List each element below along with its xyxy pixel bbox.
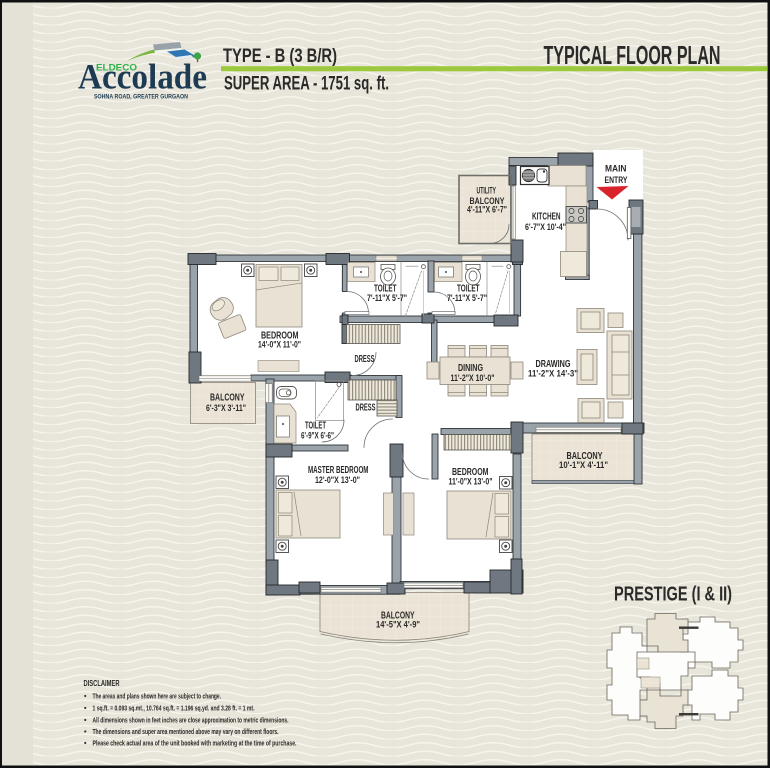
svg-text:6'-3"X 3'-11": 6'-3"X 3'-11" (206, 403, 246, 413)
svg-text:14'-0"X 11'-0": 14'-0"X 11'-0" (258, 340, 301, 351)
svg-text:11'-0"X 13'-0": 11'-0"X 13'-0" (449, 476, 493, 486)
svg-text:Please check actual area of th: Please check actual area of the unit boo… (93, 739, 297, 748)
svg-text:11'-2"X 10'-0": 11'-2"X 10'-0" (451, 373, 495, 383)
svg-text:6'-9"X 6'-6": 6'-9"X 6'-6" (301, 430, 334, 440)
svg-text:MAIN: MAIN (605, 164, 627, 175)
svg-text:TYPE - B (3 B/R): TYPE - B (3 B/R) (223, 45, 337, 67)
svg-text:14'-5"X 4'-9": 14'-5"X 4'-9" (376, 620, 420, 630)
svg-text:ENTRY: ENTRY (605, 175, 628, 186)
svg-text:The areas and plans shown here: The areas and plans shown here are subje… (93, 692, 222, 701)
svg-text:7'-11"X 5'-7": 7'-11"X 5'-7" (447, 293, 487, 303)
svg-text:SUPER AREA - 1751 sq. ft.: SUPER AREA - 1751 sq. ft. (224, 73, 389, 95)
svg-text:TYPICAL FLOOR PLAN: TYPICAL FLOOR PLAN (544, 42, 721, 70)
svg-text:7'-11"X 5'-7": 7'-11"X 5'-7" (367, 293, 407, 303)
svg-text:10'-1"X 4'-11": 10'-1"X 4'-11" (559, 460, 608, 470)
svg-text:PRESTIGE (I & II): PRESTIGE (I & II) (614, 583, 732, 606)
svg-text:The dimensions and super area: The dimensions and super area mentioned … (93, 727, 279, 736)
svg-text:DRESS: DRESS (356, 402, 376, 413)
svg-text:DRESS: DRESS (355, 354, 375, 365)
svg-text:BALCONY: BALCONY (210, 392, 245, 403)
svg-text:12'-0"X 13'-0": 12'-0"X 13'-0" (315, 475, 360, 485)
svg-text:All dimensions shown in feet i: All dimensions shown in feet inches are … (93, 716, 289, 725)
svg-text:6'-7"X 10'-4": 6'-7"X 10'-4" (525, 222, 566, 232)
svg-text:DISCLAIMER: DISCLAIMER (84, 679, 120, 688)
svg-text:4'-11"X 6'-7": 4'-11"X 6'-7" (467, 205, 507, 215)
svg-text:SOHNA ROAD, GREATER GURGAON: SOHNA ROAD, GREATER GURGAON (94, 94, 188, 101)
svg-text:KITCHEN: KITCHEN (532, 211, 561, 223)
svg-text:1 sq.ft. = 0.093 sq.mt., 10.76: 1 sq.ft. = 0.093 sq.mt., 10.764 sq.ft. =… (93, 704, 255, 713)
svg-text:11'-2"X 14'-3": 11'-2"X 14'-3" (528, 369, 578, 379)
svg-text:Accolade: Accolade (78, 57, 207, 97)
